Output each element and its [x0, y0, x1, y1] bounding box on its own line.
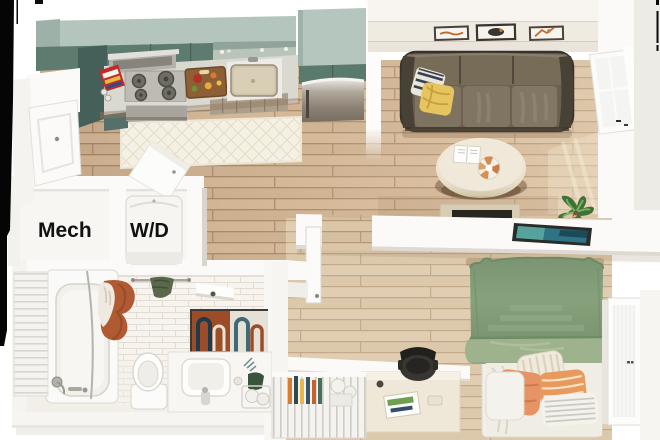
svg-text:Mech: Mech	[38, 219, 92, 242]
svg-text:W/D: W/D	[130, 220, 169, 242]
